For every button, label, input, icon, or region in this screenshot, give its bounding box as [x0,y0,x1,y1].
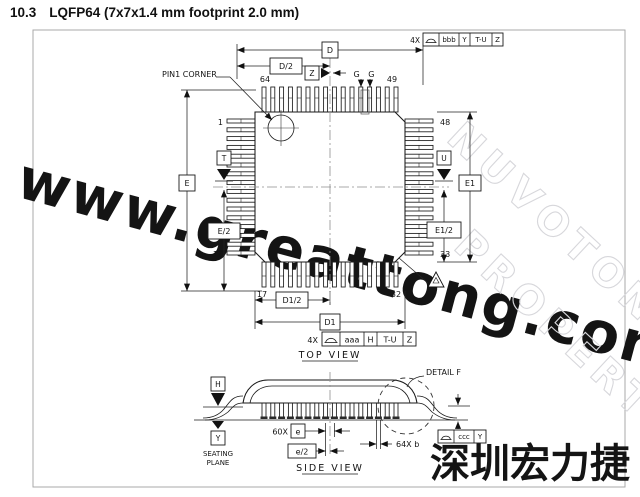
datum-y: Y [211,421,225,445]
fcf-top-datum-a: Y [461,36,467,44]
pin-label-64: 64 [260,75,270,84]
datum-label-t: T [221,154,227,163]
dim-label-pitch-half: e/2 [296,448,309,457]
fcf-top-prefix: 4X [410,36,420,45]
pin-label-33: 33 [440,250,450,259]
fcf-bottom-datum-b: T-U [383,336,397,345]
top-view-label: TOP VIEW [298,350,362,361]
watermark-chinese-text: 深圳宏力捷 [430,441,630,487]
dim-label-e1: E1 [465,179,475,188]
fcf-top: 4X bbb Y T-U Z [410,33,503,46]
fcf-top-datum-c: Z [495,36,500,44]
pin1-corner-label: PIN1 CORNER [162,70,217,79]
pin-label-1: 1 [218,118,223,127]
dim-label-pitch: e [296,428,301,437]
datum-label-u: U [441,154,447,163]
datum-label-y: Y [215,434,221,443]
dim-label-d1: D1 [324,318,335,327]
lead-width-dimension: 64X b [360,420,419,449]
dim-label-d-half: D/2 [279,62,293,71]
package-drawing: www.greattong.com NUVOTON PROPERTY [0,0,640,497]
fcf-top-datum-b: T-U [474,36,486,44]
fcf-top-tolerance: bbb [442,36,456,44]
fcf-bottom-datum-c: Z [407,336,413,345]
dim-label-gg: G G [354,70,378,79]
dim-label-d1-half: D1/2 [282,296,301,305]
fcf-bottom-prefix: 4X [307,336,318,345]
fcf-side-datum-a: Y [477,433,483,441]
fcf-bottom-tolerance: aaa [345,336,360,345]
pin-label-48: 48 [440,118,450,127]
pitch-count-label: 60X [272,428,288,437]
dim-label-lead-width: 64X b [396,440,419,449]
datum-label-h: H [215,380,221,389]
dim-label-d: D [327,46,333,55]
datum-h: H [211,377,225,406]
pin-label-16: 16 [213,250,223,259]
detail-f-label: DETAIL F [426,368,461,377]
fcf-bottom: 4X aaa H T-U Z [307,332,416,346]
side-view-label: SIDE VIEW [296,463,364,474]
dim-label-e1-half: E1/2 [435,226,453,235]
fcf-side-tolerance: ccc [458,433,470,441]
pin-label-32: 32 [391,290,401,299]
datasheet-page: 10.3LQFP64 (7x7x1.4 mm footprint 2.0 mm)… [0,0,640,497]
datum-label-z: Z [309,69,314,78]
fcf-bottom-datum-a: H [367,336,373,345]
dim-label-e: E [184,179,189,188]
pitch-dimensions: 60X e e/2 [272,423,350,458]
dim-label-e-half: E/2 [218,227,231,236]
seating-plane-label-2: PLANE [207,459,230,467]
pin-label-49: 49 [387,75,397,84]
seating-plane-label-1: SEATING [203,450,233,458]
pin-label-17: 17 [257,290,267,299]
